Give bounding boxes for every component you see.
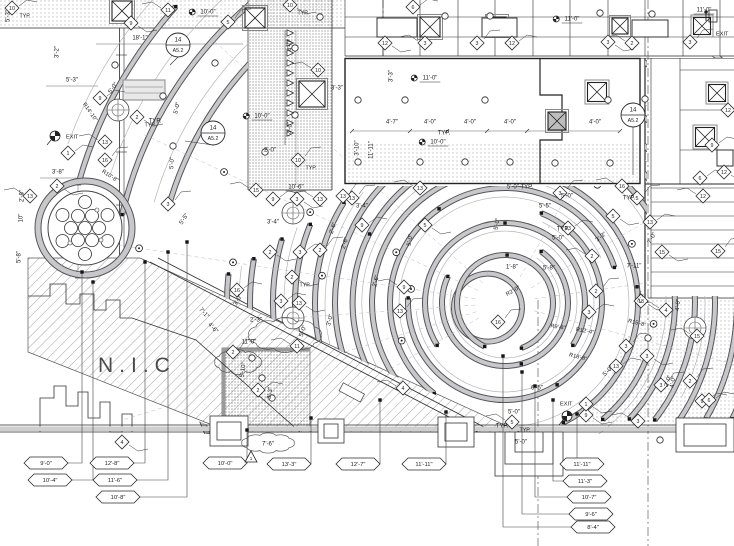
downlight [212,60,218,66]
dimension-text: 2'-8" [20,190,26,202]
ceiling-height-value: 13'-3" [282,462,297,468]
arc-end-tick [520,346,523,349]
keynote-number: 3 [299,250,302,256]
downlight [597,10,603,16]
trough-fixture [482,18,517,37]
arc-end-tick [540,211,543,214]
downlight [649,11,655,17]
keynote-leader [175,191,191,200]
dimension-text: 10'-0" [200,10,215,16]
arc-end-tick [446,275,449,278]
keynote-number: 1 [67,151,70,157]
arc-end-tick [551,398,554,401]
arc-end-tick [357,452,360,455]
downlight [355,97,361,103]
pilaster [445,423,467,441]
pendant [79,222,92,235]
keynote-number: 13 [417,186,423,192]
dimension-text: 6'-5" [531,386,543,392]
detail-number: 14 [630,108,637,114]
arc-end-tick [309,223,312,226]
detail-leader [170,57,178,65]
dimension-text: 4'-0" [464,120,476,126]
pendant [79,196,92,209]
keynote-number: 3 [588,310,591,316]
dimension-text: 5'-0" [407,234,415,247]
nic-label: N.I.C [98,354,176,377]
arc-end-tick [120,213,123,216]
dimension-text: 4'-0" [589,120,601,126]
arc-end-tick [517,112,520,115]
pendant [56,235,69,248]
downlight [645,335,651,341]
keynote-number: 3 [167,202,170,208]
downlight [657,437,663,443]
keynote-number: 13 [340,194,346,200]
keynote-number: 5 [511,420,514,426]
keynote-leader [519,35,537,41]
keynote-number: 15 [659,250,665,256]
dimension-text: 3'-4" [267,220,279,226]
keynote-number: 16 [495,320,501,326]
arc-end-tick [174,5,177,8]
downlight [317,14,323,20]
dimension-text: 5'-0" [552,236,564,242]
keynote-leader [620,219,639,225]
keynote-number: 3 [296,197,299,203]
keynote-number: 2 [591,254,594,260]
pendant [56,209,69,222]
dimension-text: 5'-0" [494,218,502,231]
dimension-text: TYP. [149,119,162,125]
ceiling-height-value: 11'-6" [108,478,122,484]
arc-end-tick [80,270,83,273]
arc-end-tick [527,133,530,136]
dimension-text: 11'-0" [423,76,438,82]
keynote-number: 9 [99,96,102,102]
downlight [462,159,468,165]
typ-label: TYP. [305,165,316,171]
dimension-text: 18'-1" [132,36,147,42]
keynote-number: 15 [253,188,259,194]
downlight [259,375,265,381]
arc-end-tick [368,232,371,235]
dimension-text: 5'-8" [17,251,23,263]
keynote-leader [644,185,660,194]
trough-fixture [123,80,165,100]
arc-end-tick [378,398,381,401]
dimension-text: 4'-0" [504,120,516,126]
dimension-text: TYP. [496,424,509,430]
dimension-text: 3'-3" [389,70,395,82]
dimension-text: 4'-0" [424,120,436,126]
keynote-number: 11 [165,8,171,14]
keynote-number: 3 [646,354,649,360]
pendant [65,222,78,235]
ceiling-height-value: 11'-3" [578,479,592,485]
keynote-number: 9 [711,143,714,149]
keynote-number: 16 [234,288,240,294]
dimension-text: 3'-8" [52,170,64,176]
arc-end-tick [268,449,271,452]
wall-poche [0,427,734,432]
ceiling-height-value: 12'-7" [351,462,366,468]
keynote-number: 5 [612,214,615,220]
ceiling-height-value: 8'-4" [587,525,599,531]
keynote-number: 13 [102,140,108,146]
keynote-number: 10 [295,158,301,164]
keynote-number: 12 [725,108,731,114]
pendant [79,248,92,261]
keynote-number: 2 [291,275,294,281]
arc-end-tick [185,240,188,243]
trough-fixture [717,150,733,166]
keynote-number: 5 [636,196,639,202]
keynote-number: 2 [257,388,260,394]
keynote-number: 3 [660,383,663,389]
ceiling-height-value: 9'-0" [40,461,52,467]
keynote-leader [392,46,411,52]
keynote-number: 9 [130,21,133,27]
keynote-leader [603,278,619,287]
typ-label: TYP. [297,10,308,16]
arc-end-tick [503,221,506,224]
keynote-number: 12 [700,194,706,200]
arc-end-tick [520,370,523,373]
ceiling-plan-drawing: 9'-0"10'-4"12'-8"11'-6"10'-8"10'-0"13'-3… [0,0,734,546]
arc-end-tick [635,285,638,288]
keynote-leader [719,137,734,143]
dimension-text: 2'-0" [264,148,276,154]
keynote-number: 13 [317,197,323,203]
keynote-number: 9 [403,285,406,291]
arc-end-tick [252,257,255,260]
dimension-text: 2'-3" [250,318,262,324]
keynote-number: 13 [647,220,653,226]
keynote-number: 4 [121,440,124,446]
arc-end-tick [206,433,209,436]
downlight [417,159,423,165]
arc-end-tick [511,69,514,72]
pilaster [684,424,726,446]
arc-end-tick [227,272,230,275]
dimension-text: 5'-0" [173,102,181,115]
pilaster [324,424,338,438]
keynote-number: 3 [280,299,283,305]
downlight [607,160,613,166]
keynote-number: 5 [424,223,427,229]
dimension-text: 3'-10" [355,140,361,155]
pendant [101,209,114,222]
downlight [507,159,513,165]
dimension-text: 5'-3" [66,78,78,84]
keynote-number: 2 [269,250,272,256]
arc-end-tick [437,207,440,210]
revision-dim: 7'-6" [262,442,274,448]
keynote-number: 13 [27,194,33,200]
downlight [605,97,611,103]
dimension-text: 4'-0" [675,299,682,311]
keynote-number: 2 [595,289,598,295]
downlight [249,355,255,361]
keynote-number: 2 [689,379,692,385]
keynote-number: 12 [509,41,515,47]
trough-fixture [377,18,417,37]
downlight [594,181,601,188]
dimension-text: 3'-4" [356,204,368,210]
keynote-leader [677,188,696,194]
downlight [170,143,176,149]
keynote-number: 10 [287,3,293,9]
dimension-text: 4'-0" [288,39,294,51]
ceiling-height-value: 10'-7" [582,495,597,501]
dimension-text: 3'-2" [55,46,61,58]
keynote-number: 3 [607,40,610,46]
typ-label: TYP. [299,282,310,288]
exit-person-icon [704,10,707,13]
dimension-text: 5'-8" [543,266,555,272]
dimension-text: TYP. [623,196,636,202]
arc-end-tick [406,296,409,299]
arc-end-tick [539,250,542,253]
arc-end-tick [602,116,605,119]
downlight [482,97,488,103]
keynote-number: 5 [227,20,230,26]
ceiling-plan-sheet: 9'-0"10'-4"12'-8"11'-6"10'-8"10'-0"13'-3… [0,0,734,546]
detail-number: 14 [175,38,182,44]
keynote-number: 6 [412,5,415,11]
keynote-number: 15 [715,249,721,255]
keynote-number: 2 [631,41,634,47]
arc-end-tick [483,345,486,348]
dimension-text: 5'-0" TYP. [507,185,533,191]
detail-sheet: A5.2 [173,48,184,54]
arc-end-tick [143,260,146,263]
keynote-number: 13 [349,196,355,202]
arc-end-tick [613,266,616,269]
keynote-number: 10 [315,68,321,74]
arc-end-tick [444,410,447,413]
detail-number: 14 [210,126,217,132]
arc-end-tick [309,416,312,419]
arc-end-tick [418,449,421,452]
ceiling-height-value: 11'-11" [573,462,590,468]
keynote-number: 2 [319,248,322,254]
revision-number: 1 [250,456,253,461]
ceiling-height-value: 9'-6" [585,512,597,518]
keynote-number: 3 [476,41,479,47]
keynote-leader [725,238,734,247]
dimension-text: 1'-8" [506,265,518,271]
radius-label: R14'-10" [81,102,98,123]
arc-end-tick [601,418,604,421]
dimension-text: 10'-6" [288,185,303,191]
pendant [86,234,99,247]
ceiling-height-value: 12'-8" [105,461,120,467]
dimension-text: 5'-5" [539,204,551,210]
exit-label: EXIT [560,401,573,407]
dimension-text: 11'-0" [242,340,257,346]
keynote-number: 15 [694,334,700,340]
arc-end-tick [91,280,94,283]
keynote-number: 3 [424,41,427,47]
keynote-number: 4 [402,386,405,392]
downlight [402,97,408,103]
dimension-text: 10'-0" [254,114,269,120]
keynote-number: 2 [136,115,139,121]
arc-end-tick [501,354,504,357]
trough-fixture [632,20,668,37]
ceiling-height-value: 10'-8" [111,495,126,501]
typ-label: TYP. [519,427,530,433]
keynote-number: 3 [625,344,628,350]
pendant [72,209,85,222]
dimension-text: TYP. [438,131,451,137]
dimension-text: 11'-11" [369,141,375,159]
keynote-number: 13 [296,301,302,307]
dimension-text: 10'-0" [430,140,445,146]
keynote-number: 1 [585,402,588,408]
dimension-text: 5'-3" [6,10,12,22]
stipple-room-band [347,143,638,182]
keynote-number: 9 [361,223,364,229]
radius-label: R9'-8" [550,323,566,331]
dimension-text: 5'-0" [561,194,573,200]
typ-label: TYP. [19,13,30,19]
keynote-number: 11 [294,344,300,350]
downlight [656,103,663,110]
keynote-number: 16 [102,158,108,164]
downlight [552,160,558,166]
keynote-leader [230,182,249,188]
keynote-leader [420,0,438,5]
keynote-number: 9 [272,197,275,203]
detail-sheet: A5.2 [628,118,639,124]
keynote-number: 13 [397,309,403,315]
pilaster [217,422,241,440]
keynote-leader [432,228,451,234]
arc-end-tick [245,428,248,431]
dimension-text: 7'-0" [647,232,658,245]
downlight [442,13,448,19]
keynote-leader [657,214,675,220]
dimension-text: 7'-11" [627,264,642,270]
wall-line [47,140,51,145]
dimension-text: 4'-0" [288,122,294,134]
dimension-text: 5'-5" [179,213,190,226]
keynote-number: 2 [56,184,59,190]
keynote-number: 3 [637,419,640,425]
arc-end-tick [505,253,508,256]
dimension-text: 11'-0" [565,17,580,23]
soffit-arc [408,213,602,400]
arc-end-tick [166,250,169,253]
downlight [355,159,361,165]
ceiling-height-value: 10'-4" [43,478,58,484]
downlight [112,62,118,68]
downlight [160,93,166,99]
keynote-number: 6 [708,398,711,404]
downlight [642,96,648,102]
dimension-text: TYP. [557,227,570,233]
exit-label: EXIT [66,134,79,140]
keynote-number: 4 [665,308,668,314]
detail-sheet: A5.2 [208,136,219,142]
dimension-text: 3'-3" [331,86,343,92]
arc-end-tick [435,344,438,347]
ceiling-height-value: 10'-0" [218,461,233,467]
arc-end-tick [575,412,578,415]
pendant [93,222,106,235]
arc-end-tick [555,383,558,386]
arc-end-tick [571,344,574,347]
keynote-number: 12 [721,170,727,176]
ceiling-height-value: 11'-11" [415,462,432,468]
arc-end-tick [386,451,389,454]
dimension-text: 4'-7" [386,120,398,126]
exit-label: EXIT [716,31,729,37]
dimension-text: 5'-0" [515,440,527,446]
dimension-text: 5'-0" [508,410,520,416]
arc-end-tick [331,457,334,460]
dimension-text: 5'-0" [169,157,176,169]
arc-end-tick [520,362,523,365]
downlight [715,200,722,207]
pendant [72,234,85,247]
keynote-number: 9 [585,413,588,419]
downlight [487,13,493,19]
keynote-number: 6 [699,176,702,182]
keynote-number: 12 [382,41,388,47]
arc-end-tick [674,112,677,115]
arc-end-tick [280,237,283,240]
keynote-number: 16 [619,184,625,190]
keynote-number: 3 [689,40,692,46]
arc-end-tick [653,418,656,421]
dimension-text: 10" [19,214,25,223]
keynote-number: 2 [232,350,235,356]
